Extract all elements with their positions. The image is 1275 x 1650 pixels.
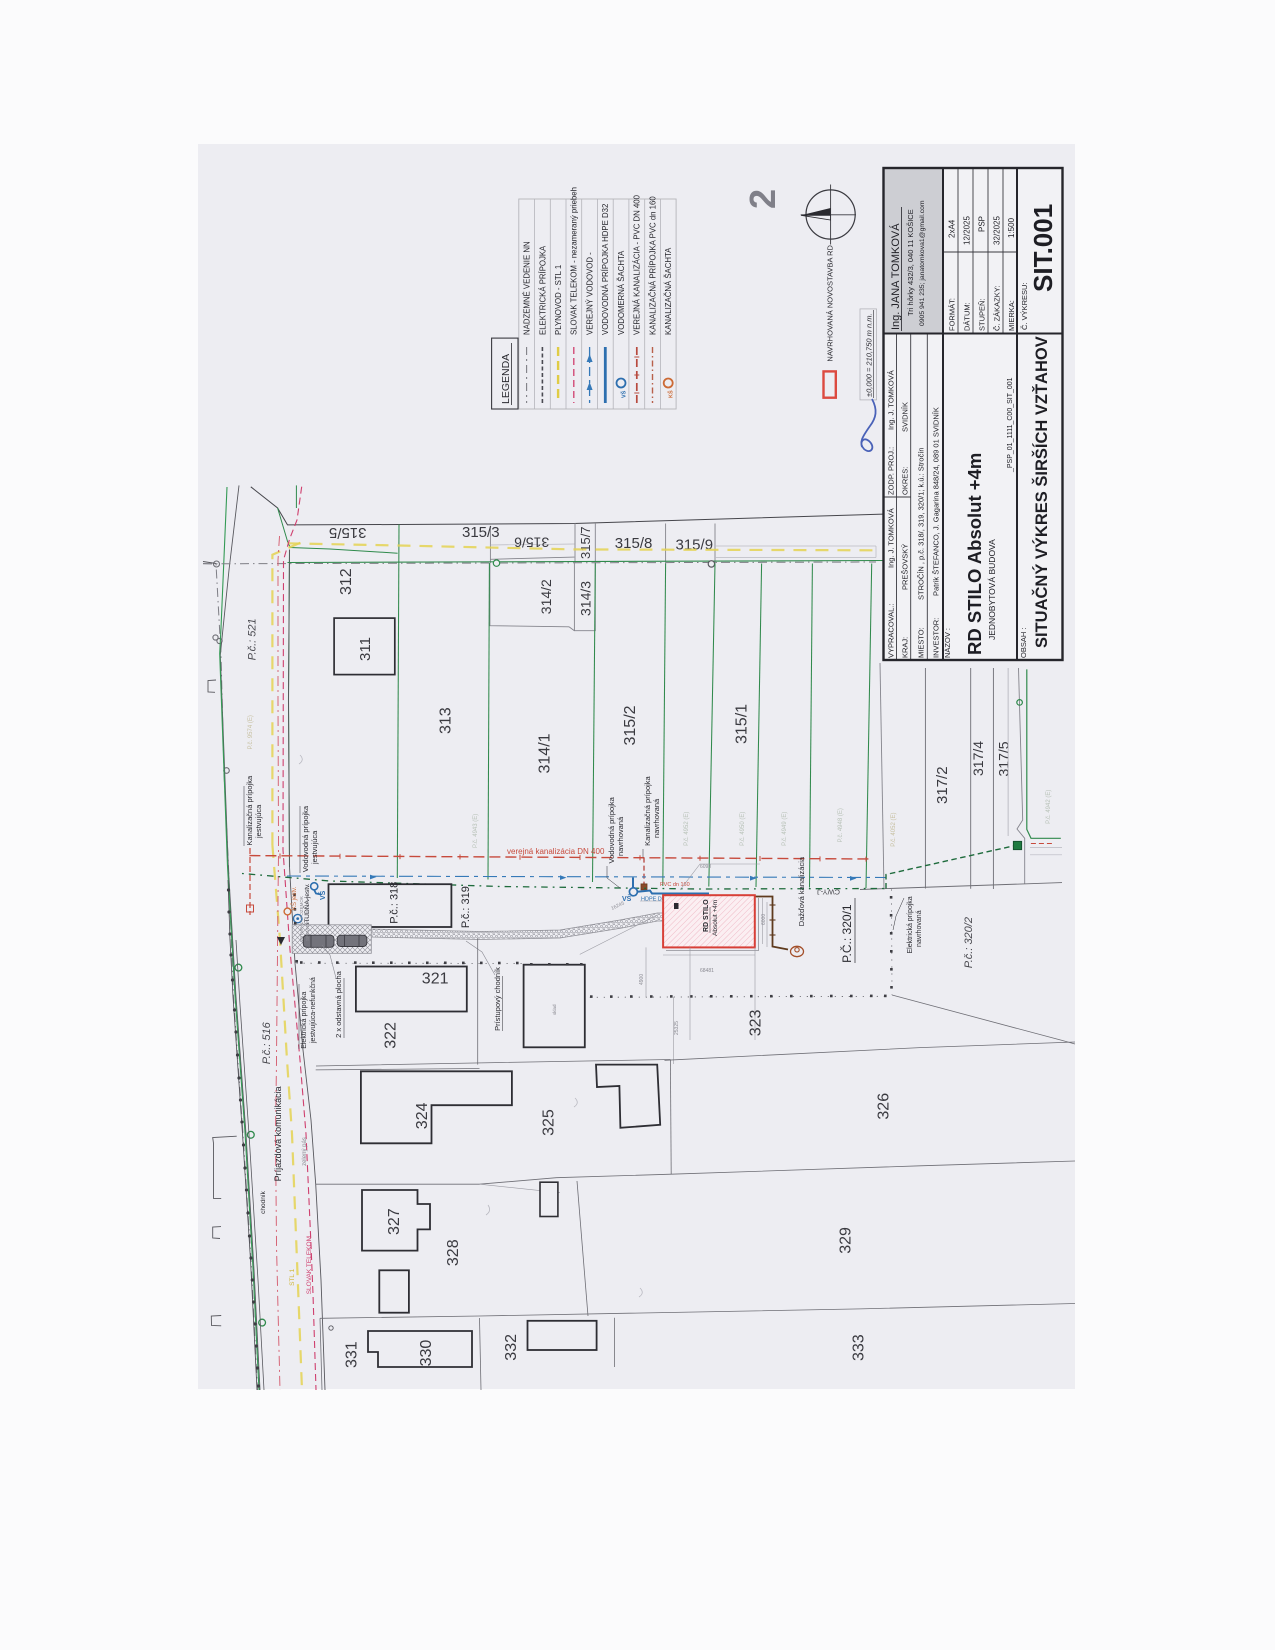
- svg-text:KŠ jestv.: KŠ jestv.: [291, 886, 298, 910]
- svg-text:P.Č.: 320/1: P.Č.: 320/1: [839, 904, 854, 963]
- svg-text:Č. ZÁKAZKY:: Č. ZÁKAZKY:: [993, 286, 1002, 331]
- svg-text:MIERKA:: MIERKA:: [1007, 300, 1016, 331]
- svg-text:Absolut +4m: Absolut +4m: [712, 900, 719, 936]
- svg-text:Tri hôrky 432/3, 040 11 KOŠICE: Tri hôrky 432/3, 040 11 KOŠICE: [906, 209, 915, 316]
- svg-text:317/4: 317/4: [970, 741, 986, 776]
- svg-text:CWY-J: CWY-J: [817, 887, 840, 896]
- svg-text:±0,000 = 210,750 m n.m.: ±0,000 = 210,750 m n.m.: [865, 313, 874, 397]
- svg-text:315/7: 315/7: [578, 526, 593, 559]
- svg-text:NADZEMNÉ VEDENIE NN: NADZEMNÉ VEDENIE NN: [523, 241, 532, 335]
- svg-text:315/3: 315/3: [462, 524, 500, 541]
- svg-text:P.č.: 516: P.č.: 516: [261, 1021, 273, 1064]
- svg-text:Elektrická prípojka: Elektrická prípojka: [301, 992, 308, 1049]
- svg-text:329: 329: [838, 1227, 855, 1254]
- svg-text:324: 324: [414, 1102, 431, 1129]
- svg-text:PLYNOVOD - STL 1: PLYNOVOD - STL 1: [554, 265, 563, 335]
- svg-text:332: 332: [503, 1334, 520, 1361]
- svg-text:PREŠOVSKÝ: PREŠOVSKÝ: [901, 544, 910, 590]
- svg-text:VODOVODNÁ PRÍPOJKA HDPE D32: VODOVODNÁ PRÍPOJKA HDPE D32: [601, 204, 610, 335]
- svg-text:317/5: 317/5: [996, 741, 1012, 776]
- svg-text:VEREJNÁ KANALIZÁCIA - PVC DN 4: VEREJNÁ KANALIZÁCIA - PVC DN 400: [633, 194, 642, 335]
- svg-text:NÁZOV :: NÁZOV :: [943, 628, 952, 658]
- svg-text:SVIDNÍK: SVIDNÍK: [901, 402, 910, 432]
- svg-text:P.č. 4952 (E): P.č. 4952 (E): [684, 812, 690, 846]
- svg-text:P.č. 4052 (E): P.č. 4052 (E): [891, 813, 897, 847]
- svg-text:327: 327: [386, 1208, 403, 1235]
- svg-text:317/2: 317/2: [934, 766, 951, 804]
- svg-text:6090: 6090: [700, 864, 711, 870]
- svg-text:323: 323: [747, 1010, 764, 1037]
- svg-text:STROČÍN , p.č. 318/, 319, 320/: STROČÍN , p.č. 318/, 319, 320/1; k.ú.: S…: [917, 447, 926, 600]
- svg-text:RD STILO: RD STILO: [703, 899, 710, 932]
- svg-text:PSP: PSP: [978, 216, 987, 232]
- svg-text:chodník: chodník: [260, 1190, 267, 1214]
- svg-text:ZODP. PROJ.:: ZODP. PROJ.:: [887, 447, 896, 495]
- svg-text:P.č. 9574 (E): P.č. 9574 (E): [248, 715, 254, 749]
- svg-text:navrhovaná: navrhovaná: [652, 798, 661, 838]
- svg-text:OBSAH :: OBSAH :: [1019, 628, 1028, 658]
- svg-text:P.č. 4948 (E): P.č. 4948 (E): [838, 808, 844, 842]
- svg-text:P.č.: 320/2: P.č.: 320/2: [963, 917, 975, 968]
- svg-text:321: 321: [422, 971, 449, 988]
- svg-text:navrhovaná: navrhovaná: [616, 816, 625, 856]
- svg-text:0905 941 235; janatomkova1@gma: 0905 941 235; janatomkova1@gmail.com: [919, 200, 926, 326]
- svg-text:STUPEŇ:: STUPEŇ:: [978, 298, 987, 331]
- svg-text:verejná kanalizácia DN 400: verejná kanalizácia DN 400: [507, 847, 605, 856]
- svg-text:314/1: 314/1: [537, 733, 554, 773]
- svg-text:MIESTO:: MIESTO:: [917, 627, 926, 658]
- svg-text:P.č. 4942 (E): P.č. 4942 (E): [1046, 790, 1052, 824]
- svg-text:Patrik ŠTEFANCO, J. Gagarina 8: Patrik ŠTEFANCO, J. Gagarina 848/24, 089…: [932, 407, 941, 596]
- svg-text:SLOVAK TELEKOM - nezameraný pr: SLOVAK TELEKOM - nezameraný priebeh: [570, 187, 579, 335]
- svg-text:312: 312: [338, 568, 355, 595]
- svg-text:Prístupový chodník: Prístupový chodník: [493, 967, 502, 1031]
- svg-text:2: 2: [742, 189, 783, 209]
- svg-text:P.č. 4949 (E): P.č. 4949 (E): [782, 812, 788, 846]
- svg-text:P.č.: 521: P.č.: 521: [247, 618, 259, 660]
- svg-text:315/9: 315/9: [676, 537, 714, 554]
- svg-text:4900: 4900: [639, 974, 645, 985]
- svg-text:P.č. 4950 (E): P.č. 4950 (E): [740, 812, 746, 846]
- svg-text:Kanalizačná prípojka: Kanalizačná prípojka: [643, 775, 652, 845]
- svg-text:322: 322: [382, 1022, 399, 1049]
- svg-text:Príjazdová komunikácia: Príjazdová komunikácia: [273, 1086, 283, 1181]
- svg-text:Elektrická prípojka: Elektrická prípojka: [907, 896, 914, 953]
- svg-text:NAVRHOVANÁ NOVOSTAVBA RD: NAVRHOVANÁ NOVOSTAVBA RD: [826, 244, 835, 361]
- svg-text:6000: 6000: [761, 914, 767, 925]
- svg-text:SIT.001: SIT.001: [1028, 204, 1058, 292]
- svg-text:navrhovaná: navrhovaná: [916, 910, 923, 947]
- svg-text:325: 325: [541, 1109, 558, 1136]
- svg-text:VŠ: VŠ: [318, 890, 327, 900]
- svg-text:P.č. 4943 (E): P.č. 4943 (E): [473, 814, 479, 848]
- svg-text:315/5: 315/5: [329, 524, 367, 541]
- svg-text:VŠ: VŠ: [620, 390, 628, 398]
- svg-text:326: 326: [876, 1093, 893, 1120]
- svg-text:JEDNOBYTOVÁ BUDOVA: JEDNOBYTOVÁ BUDOVA: [987, 539, 997, 640]
- svg-text:2xA4: 2xA4: [948, 219, 957, 238]
- svg-text:FORMÁT:: FORMÁT:: [948, 298, 957, 331]
- svg-text:_PSP_01_1111_C00_SIT_001: _PSP_01_1111_C00_SIT_001: [1007, 377, 1014, 473]
- svg-text:Kanalizačná prípojka: Kanalizačná prípojka: [245, 775, 254, 845]
- svg-text:Ing. J. TOMKOVÁ: Ing. J. TOMKOVÁ: [887, 508, 896, 568]
- svg-text:Ing. J. TOMKOVÁ: Ing. J. TOMKOVÁ: [887, 370, 896, 430]
- svg-text:VSTUP NA POZEMOK: VSTUP NA POZEMOK: [299, 896, 304, 942]
- svg-text:315/2: 315/2: [622, 705, 639, 745]
- svg-text:VŠ: VŠ: [622, 894, 632, 903]
- svg-text:sklad: sklad: [552, 1004, 557, 1015]
- svg-text:OKRES:: OKRES:: [901, 467, 910, 495]
- svg-text:314/2: 314/2: [538, 579, 554, 614]
- svg-text:ELEKTRICKÁ PRÍPOJKA: ELEKTRICKÁ PRÍPOJKA: [538, 245, 547, 335]
- svg-text:Ing. JANA TOMKOVÁ: Ing. JANA TOMKOVÁ: [889, 223, 902, 330]
- svg-text:STL 1: STL 1: [289, 1268, 296, 1285]
- svg-text:INVESTOR:: INVESTOR:: [932, 618, 941, 658]
- svg-text:12/2025: 12/2025: [963, 216, 972, 245]
- svg-text:KRAJ:: KRAJ:: [901, 637, 910, 658]
- svg-text:VEREJNÝ VODOVOD -: VEREJNÝ VODOVOD -: [586, 252, 595, 335]
- svg-text:1:500: 1:500: [1007, 217, 1016, 238]
- svg-text:SITUAČNÝ VÝKRES ŠIRŠÍCH VZŤAHO: SITUAČNÝ VÝKRES ŠIRŠÍCH VZŤAHOV: [1032, 336, 1051, 648]
- svg-text:333: 333: [851, 1334, 868, 1361]
- svg-text:P.č.: 318: P.č.: 318: [389, 882, 401, 924]
- svg-text:KANALIZAČNÁ ŠACHTA: KANALIZAČNÁ ŠACHTA: [664, 247, 673, 335]
- svg-text:P.č.: 319: P.č.: 319: [460, 886, 472, 928]
- svg-text:zelený pás: zelený pás: [302, 1137, 308, 1166]
- svg-text:330: 330: [418, 1340, 435, 1367]
- svg-text:311: 311: [357, 637, 374, 661]
- svg-text:32/2025: 32/2025: [993, 216, 1002, 245]
- svg-text:jestvujúca-nefunkčná: jestvujúca-nefunkčná: [310, 977, 317, 1044]
- svg-text:314/3: 314/3: [578, 581, 594, 616]
- svg-text:2 x odstavná plocha: 2 x odstavná plocha: [334, 970, 343, 1038]
- svg-text:315/1: 315/1: [734, 704, 751, 744]
- svg-text:25325: 25325: [674, 1021, 680, 1035]
- svg-text:DÁTUM:: DÁTUM:: [963, 302, 972, 331]
- svg-text:331: 331: [344, 1341, 361, 1368]
- svg-text:Vodovodná prípojka: Vodovodná prípojka: [607, 796, 616, 863]
- svg-text:KŠ: KŠ: [667, 390, 675, 398]
- svg-text:RD STILO Absolut +4m: RD STILO Absolut +4m: [964, 453, 985, 655]
- svg-text:jestvujúca: jestvujúca: [310, 830, 319, 865]
- svg-text:SLOVAK TELEKOM: SLOVAK TELEKOM: [306, 1236, 313, 1294]
- svg-text:Vodovodná prípojka: Vodovodná prípojka: [301, 805, 310, 872]
- svg-text:68481: 68481: [700, 968, 714, 974]
- svg-text:jestvujúca: jestvujúca: [254, 804, 263, 839]
- svg-text:328: 328: [445, 1239, 462, 1266]
- svg-text:LEGENDA: LEGENDA: [500, 354, 512, 404]
- svg-text:313: 313: [438, 707, 455, 734]
- svg-text:SPEVNENÁ PLOCHA: SPEVNENÁ PLOCHA: [304, 897, 310, 941]
- svg-text:KANALIZAČNÁ PRÍPOJKA PVC dn 16: KANALIZAČNÁ PRÍPOJKA PVC dn 160: [648, 196, 657, 335]
- svg-text:VODOMERNÁ ŠACHTA: VODOMERNÁ ŠACHTA: [617, 250, 626, 335]
- svg-text:Dažďová kanalizácia: Dažďová kanalizácia: [797, 856, 806, 926]
- svg-text:VYPRACOVAL.:: VYPRACOVAL.:: [887, 604, 896, 658]
